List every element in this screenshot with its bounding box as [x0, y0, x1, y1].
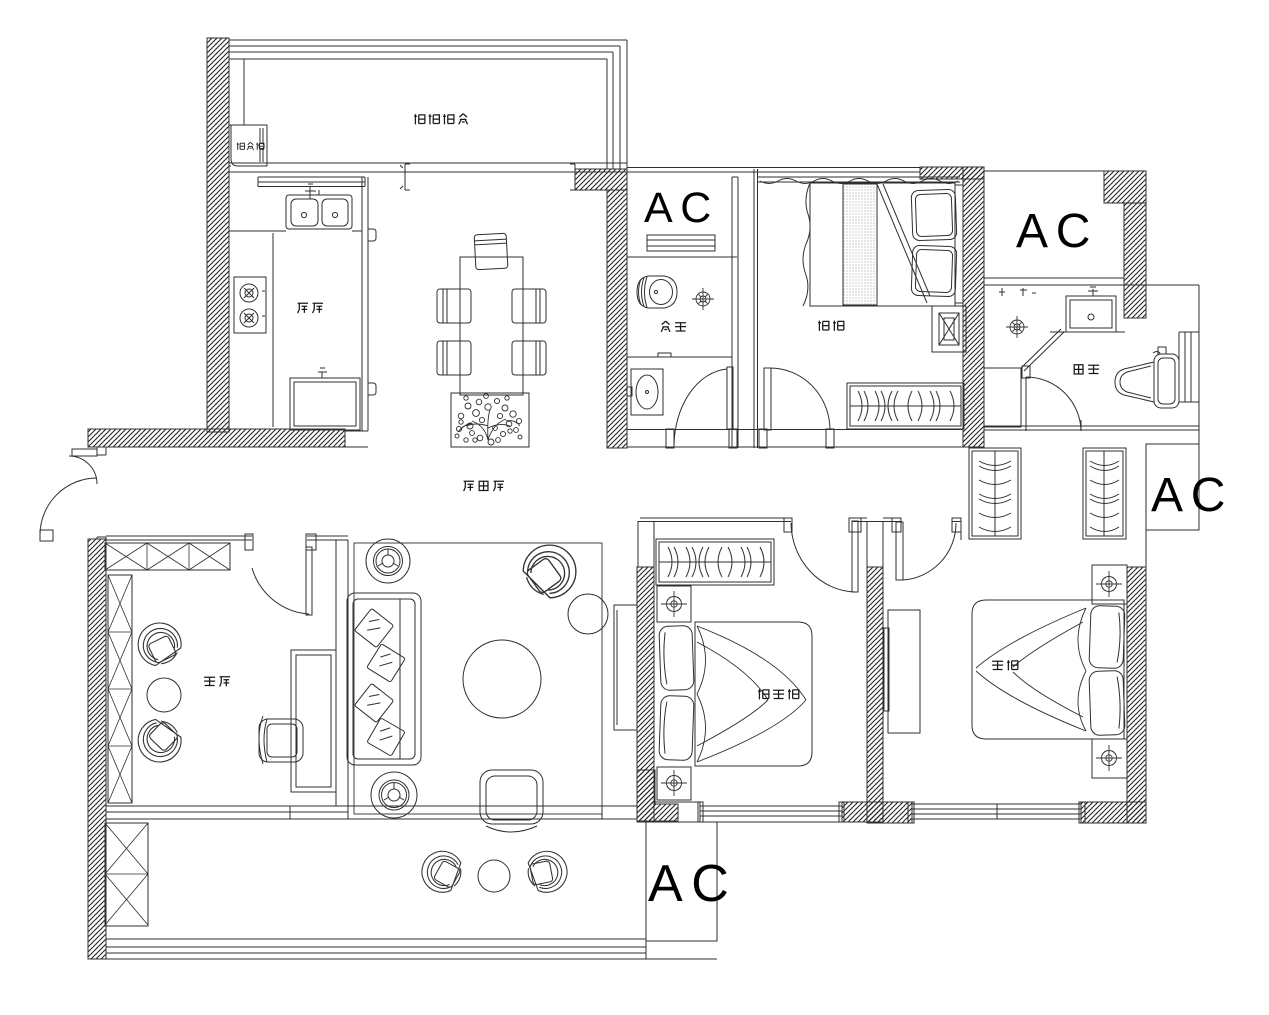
svg-text:A C: A C — [644, 184, 710, 232]
svg-text:A C: A C — [1016, 205, 1089, 258]
svg-text:A C: A C — [1151, 469, 1224, 522]
svg-text:A C: A C — [648, 855, 727, 913]
